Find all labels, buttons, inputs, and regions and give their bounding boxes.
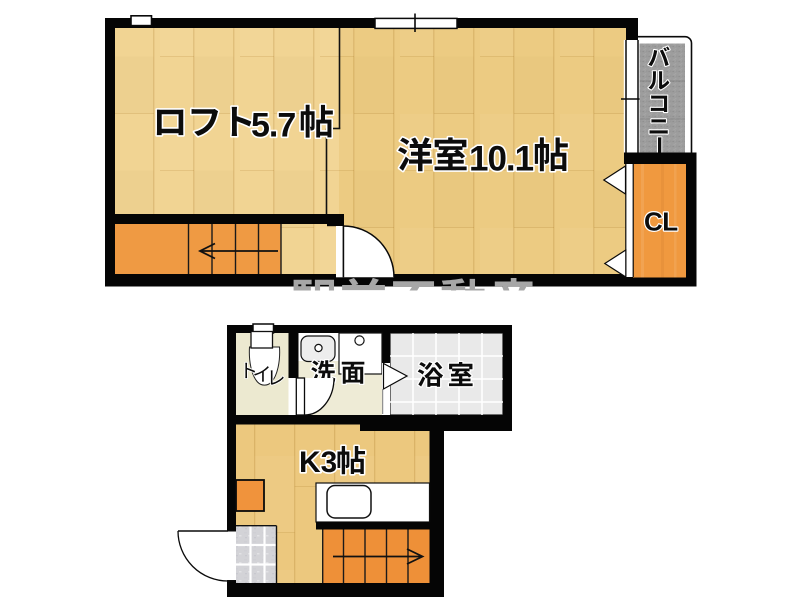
svg-text:CL: CL: [644, 207, 678, 237]
svg-text:10.1: 10.1: [469, 140, 534, 179]
svg-text:5.7: 5.7: [251, 107, 295, 145]
svg-text:K3: K3: [299, 446, 337, 479]
